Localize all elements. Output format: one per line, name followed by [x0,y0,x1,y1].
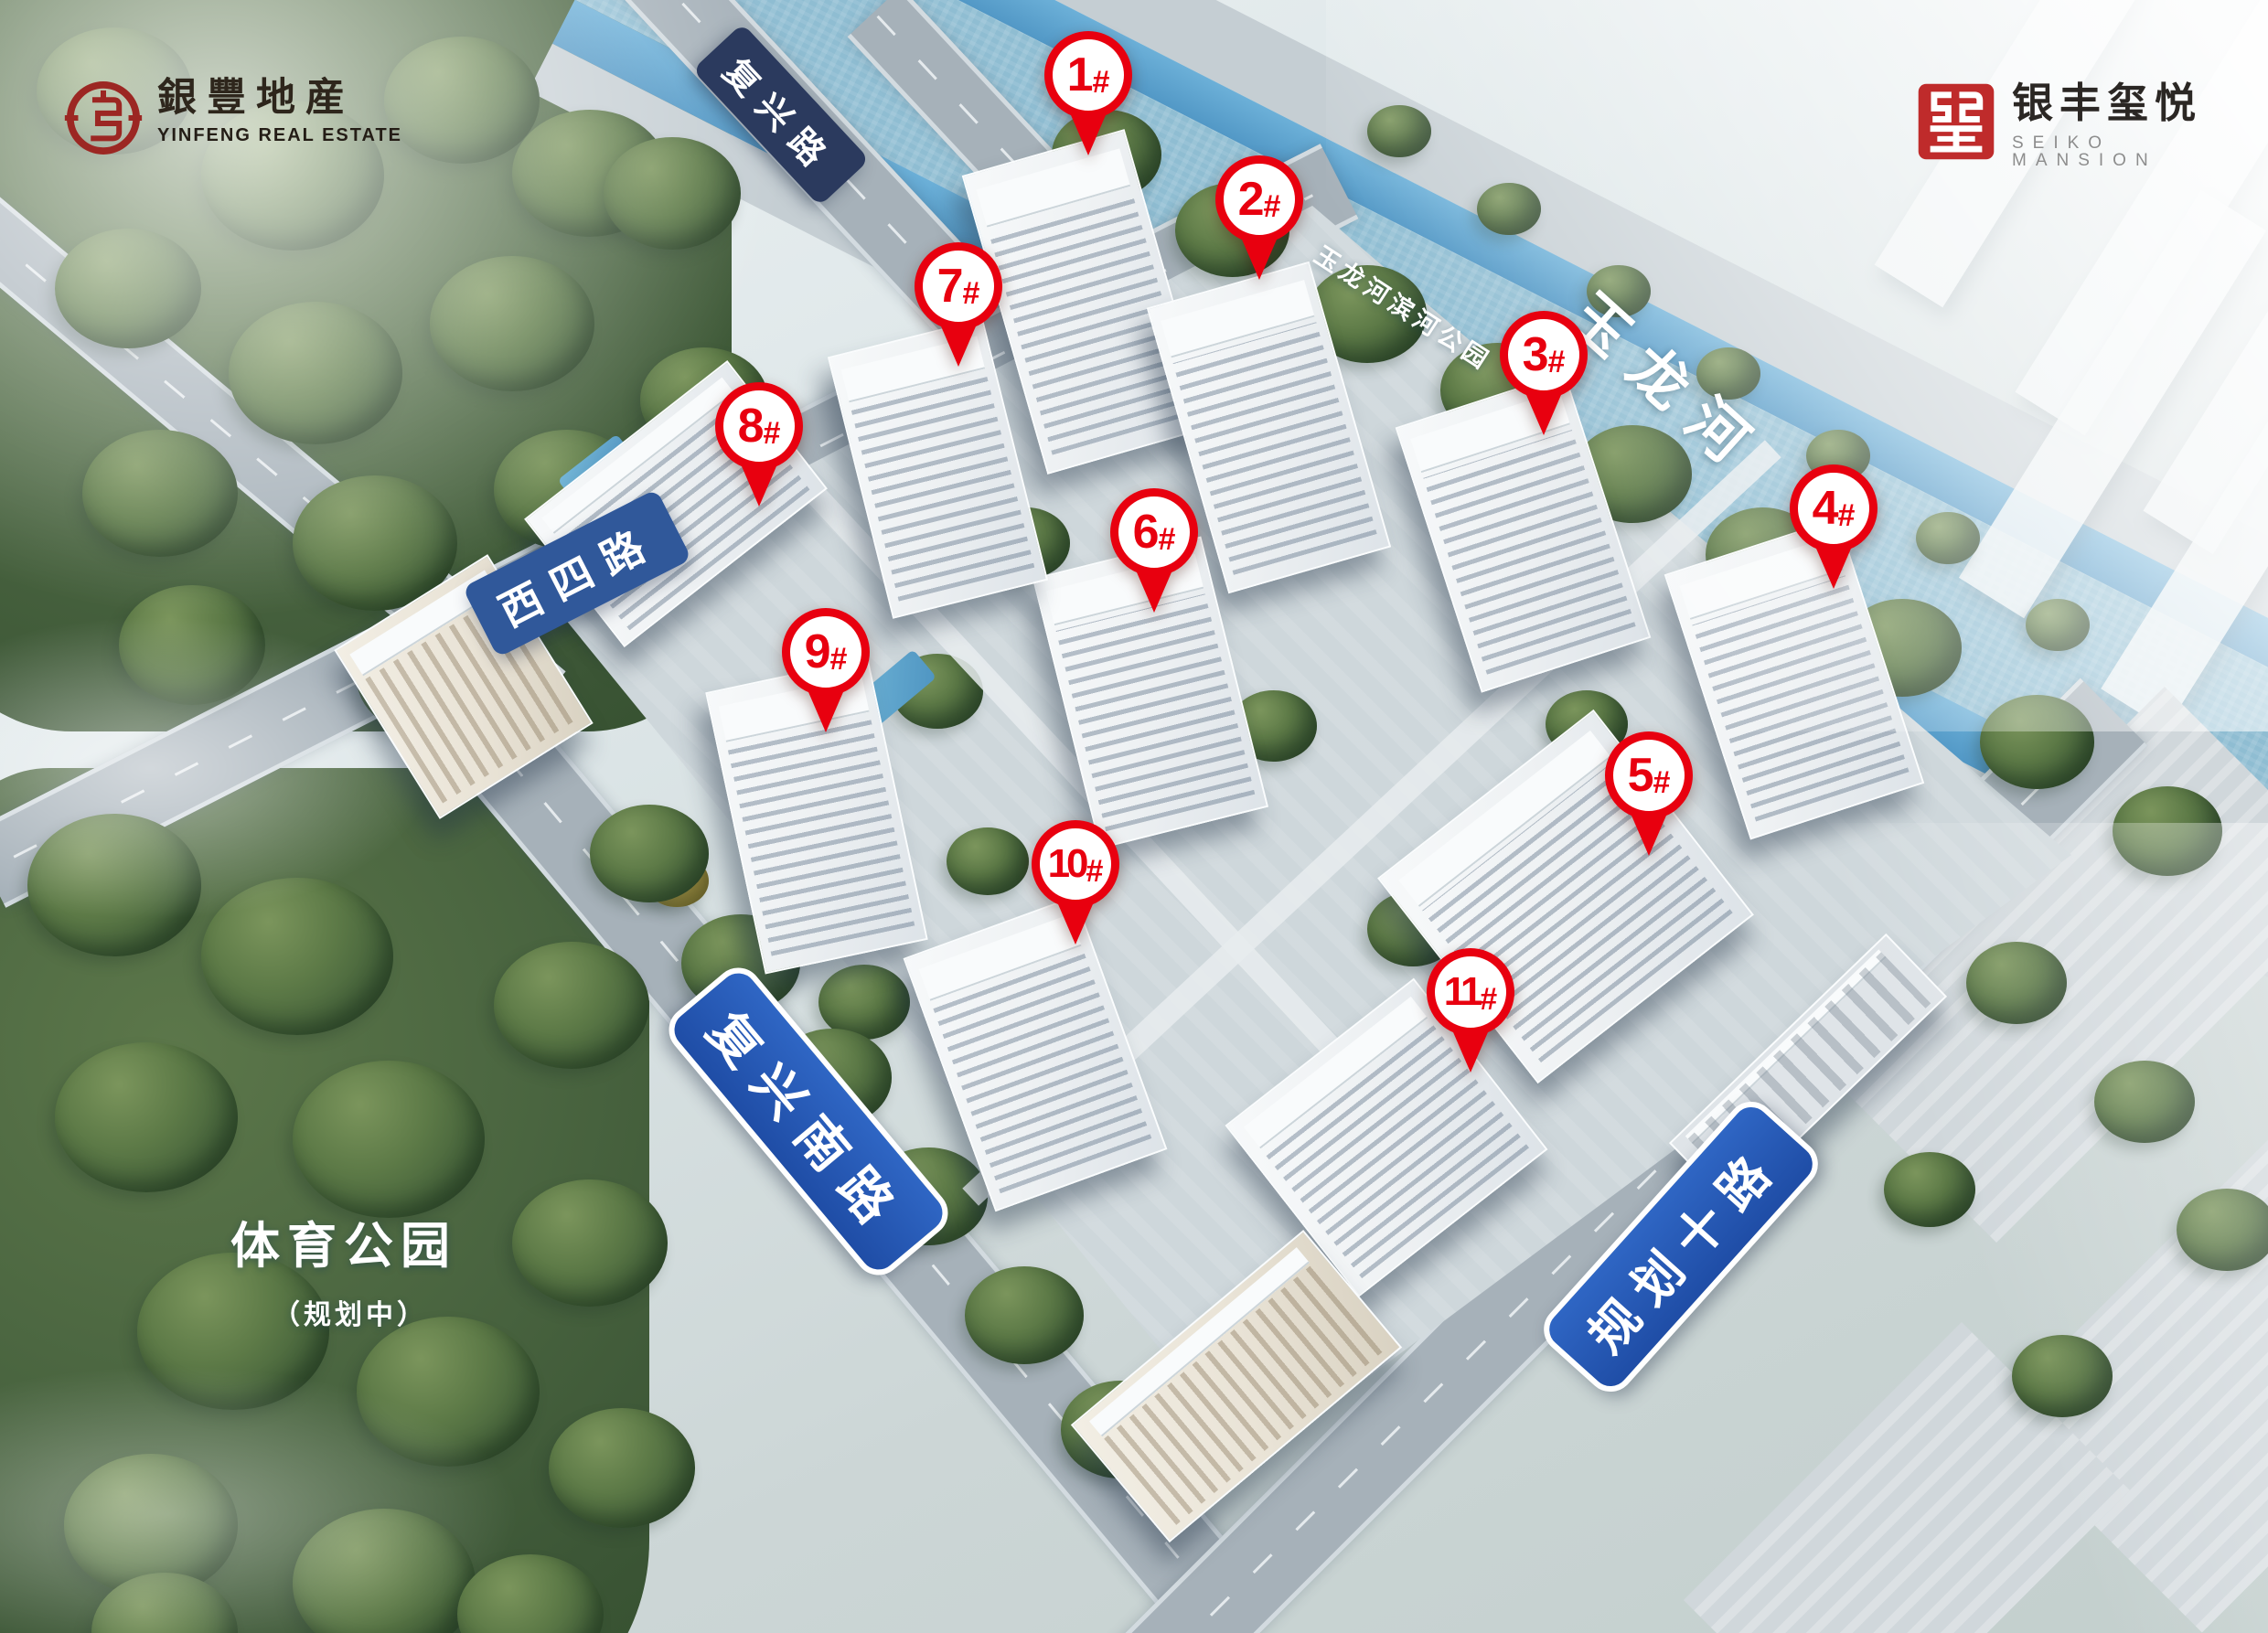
developer-name-cn: 銀豐地産 [157,79,402,118]
tree-cluster [357,1317,540,1467]
tree-cluster [55,1042,238,1192]
project-seal-icon [1917,82,1995,161]
tree-cluster [2012,1335,2113,1417]
pin-head: 7# [915,242,1002,330]
pin-head: 11# [1427,948,1514,1036]
building-pin-1[interactable]: 1# [1044,31,1132,155]
building-pin-3[interactable]: 3# [1500,311,1588,435]
tree-cluster [2113,786,2222,876]
tree-cluster [1980,695,2094,789]
pin-head: 1# [1044,31,1132,119]
pin-head: 9# [782,608,870,696]
pin-head: 4# [1790,464,1878,552]
tree-cluster [201,878,393,1035]
tree-cluster [1966,942,2067,1024]
developer-name-en: YINFENG REAL ESTATE [157,126,402,144]
tree-cluster [965,1266,1084,1364]
tree-cluster [2094,1061,2195,1143]
pin-head: 10# [1032,820,1119,908]
tree-cluster [1916,512,1980,564]
tree-cluster [293,1061,485,1218]
tree-cluster [1884,1152,1975,1227]
tree-cluster [27,814,201,956]
tree-cluster [512,1179,668,1307]
pin-head: 3# [1500,311,1588,399]
tree-cluster [430,256,594,391]
building-pin-2[interactable]: 2# [1215,155,1303,280]
developer-seal-icon [64,79,143,157]
tree-cluster [82,430,238,557]
tree-cluster [119,585,265,705]
tree-cluster [494,942,649,1069]
building-pin-4[interactable]: 4# [1790,464,1878,589]
project-logo: 银丰玺悦 SEIKO MANSION [1917,82,2268,169]
building-pin-6[interactable]: 6# [1110,488,1198,613]
sports-park-subtitle: （规划中） [273,1292,457,1332]
tree-cluster [1367,105,1431,157]
tree-cluster [947,827,1029,895]
building-pin-11[interactable]: 11# [1427,948,1514,1073]
building-pin-9[interactable]: 9# [782,608,870,732]
tree-cluster [549,1408,695,1528]
pin-head: 5# [1605,731,1693,819]
building-pin-10[interactable]: 10# [1032,820,1119,945]
masterplan-aerial-rendering: 复兴路 西四路 复兴南路 规划十路 玉龙河 玉龙河滨河公园 体育公园 （规划中）… [0,0,2268,1633]
tree-cluster [1477,183,1541,235]
tree-cluster [55,229,201,348]
developer-logo: 銀豐地産 YINFENG REAL ESTATE [64,79,402,157]
project-name-en: SEIKO MANSION [2012,134,2268,169]
pin-head: 8# [715,382,803,470]
pin-head: 2# [1215,155,1303,243]
building-pin-7[interactable]: 7# [915,242,1002,367]
tree-cluster [604,137,741,250]
pin-head: 6# [1110,488,1198,576]
project-name-cn: 银丰玺悦 [2012,82,2268,123]
tree-cluster [384,37,540,164]
tree-cluster [590,805,709,902]
building-pin-8[interactable]: 8# [715,382,803,507]
sports-park-label: 体育公园 （规划中） [230,1205,457,1332]
building-pin-5[interactable]: 5# [1605,731,1693,856]
tree-cluster [229,302,402,444]
tree-cluster [2177,1189,2268,1271]
sports-park-title: 体育公园 [230,1205,457,1277]
tree-cluster [2026,599,2090,651]
